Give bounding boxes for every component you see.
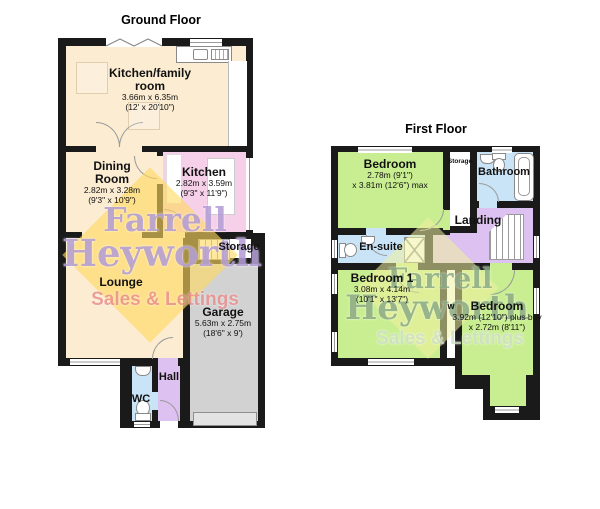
- front-door-opening: [160, 421, 178, 428]
- shower-icon: [404, 237, 425, 263]
- room-label-bedroom1: Bedroom 1 3.08m x 4.14m (10'1" x 13'7"): [351, 272, 414, 304]
- room-label-dining: Dining Room 2.82m x 3.28m (9'3" x 10'9"): [84, 160, 140, 205]
- furniture-outline: [76, 62, 108, 94]
- room-landing: [450, 233, 477, 263]
- window: [358, 147, 412, 153]
- toilet-cistern-icon: [135, 413, 151, 421]
- toilet-icon: [344, 243, 357, 257]
- room-label-ensuite: En-suite: [359, 241, 402, 253]
- room-garage: [190, 264, 258, 421]
- room-label-storage-first: Storage: [448, 158, 472, 165]
- door-opening-bedroom1: [396, 263, 418, 270]
- door-opening-wc: [152, 392, 158, 410]
- first-floor-title: First Floor: [405, 122, 467, 136]
- garage-door: [193, 412, 257, 426]
- window: [332, 332, 337, 352]
- sink-icon: [193, 49, 208, 60]
- room-label-wc: WC: [132, 393, 150, 405]
- room-label-bedroom-right: Bedroom 3.92m (12'10") plus bay x 2.72m …: [452, 300, 541, 332]
- room-label-hall: Hall: [159, 371, 179, 383]
- room-label-landing: Landing: [455, 214, 502, 227]
- window: [495, 407, 519, 413]
- room-label-kitchen: Kitchen 2.82m x 3.59m (9'3" x 11'9"): [176, 166, 232, 198]
- room-label-storage-ground: Storage: [219, 241, 260, 253]
- door-opening-dining-kitchen: [157, 156, 163, 184]
- door-opening-bedroom-right: [490, 263, 512, 270]
- zigzag-door-icon: [106, 38, 162, 47]
- room-label-garage: Garage 5.63m x 2.75m (18'6" x 9'): [195, 306, 251, 338]
- room-landing: [433, 235, 450, 263]
- kitchen-unit: [228, 61, 247, 146]
- window: [246, 158, 253, 230]
- door-opening-ensuite: [366, 228, 386, 235]
- room-label-kitchen-family: Kitchen/family room 3.66m x 6.35m (12' x…: [109, 67, 191, 112]
- door-opening-bathroom: [479, 201, 497, 208]
- window: [332, 274, 337, 294]
- window: [534, 236, 539, 258]
- room-label-lounge: Lounge: [99, 276, 142, 289]
- opening-dining-lounge: [82, 232, 142, 238]
- window: [368, 359, 414, 365]
- window: [332, 240, 337, 258]
- room-label-bedroom-top: Bedroom 2.78m (9'1") x 3.81m (12'6") max: [352, 158, 428, 190]
- window: [70, 359, 120, 365]
- drainer-icon: [211, 49, 229, 60]
- window: [134, 422, 150, 427]
- ground-floor-title: Ground Floor: [121, 13, 201, 27]
- window: [190, 39, 222, 46]
- room-label-wardrobe: w: [447, 301, 454, 311]
- room-label-bathroom: Bathroom: [478, 166, 530, 178]
- floorplan-canvas: Ground Floor Farrell Heyw: [0, 0, 600, 509]
- door-opening-bedroom-top: [443, 210, 450, 230]
- door-opening-lounge-hall: [158, 358, 178, 366]
